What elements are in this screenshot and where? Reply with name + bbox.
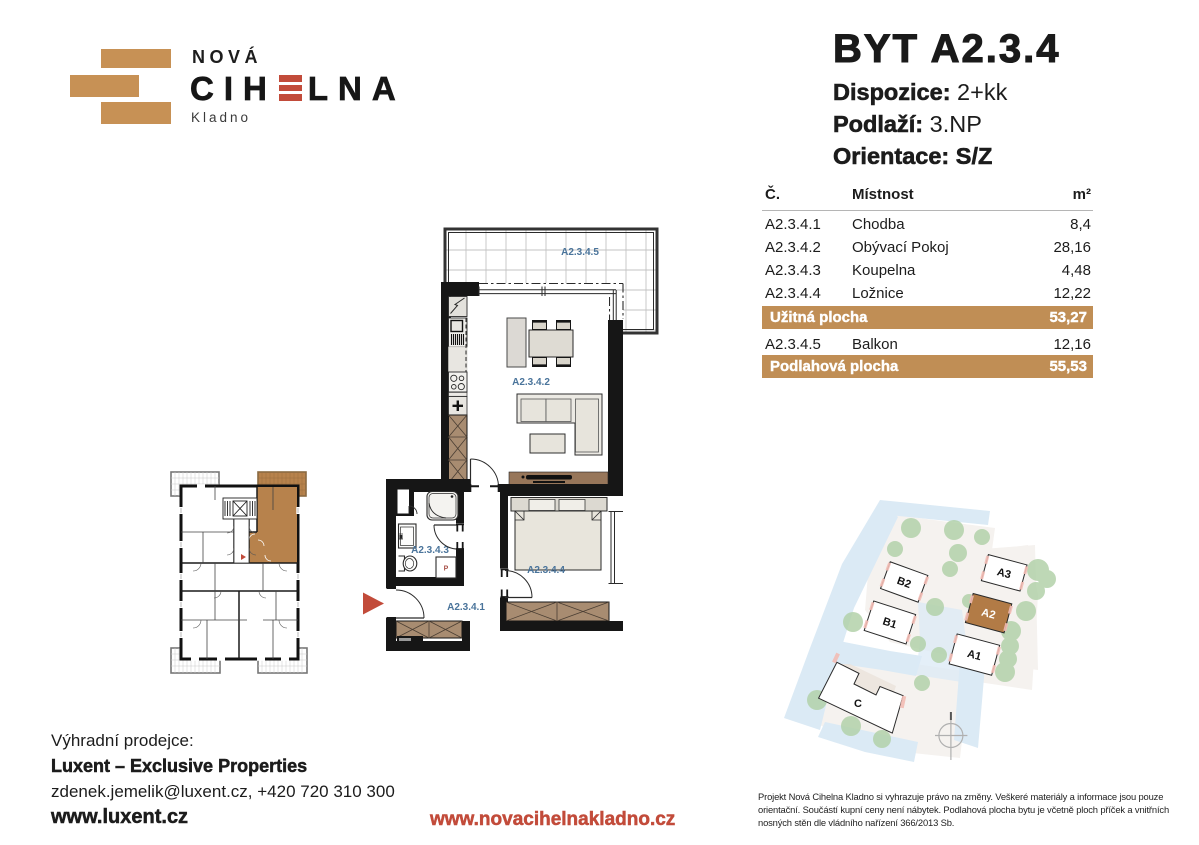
- svg-text:P: P: [444, 566, 449, 573]
- svg-text:A2.3.4.5: A2.3.4.5: [561, 247, 599, 258]
- svg-text:A2.3.4.2: A2.3.4.2: [512, 377, 550, 388]
- svg-text:A2.3.4.3: A2.3.4.3: [411, 545, 449, 556]
- svg-text:A2.3.4.1: A2.3.4.1: [447, 602, 485, 613]
- svg-text:C: C: [854, 698, 862, 710]
- svg-text:A2.3.4.4: A2.3.4.4: [527, 565, 565, 576]
